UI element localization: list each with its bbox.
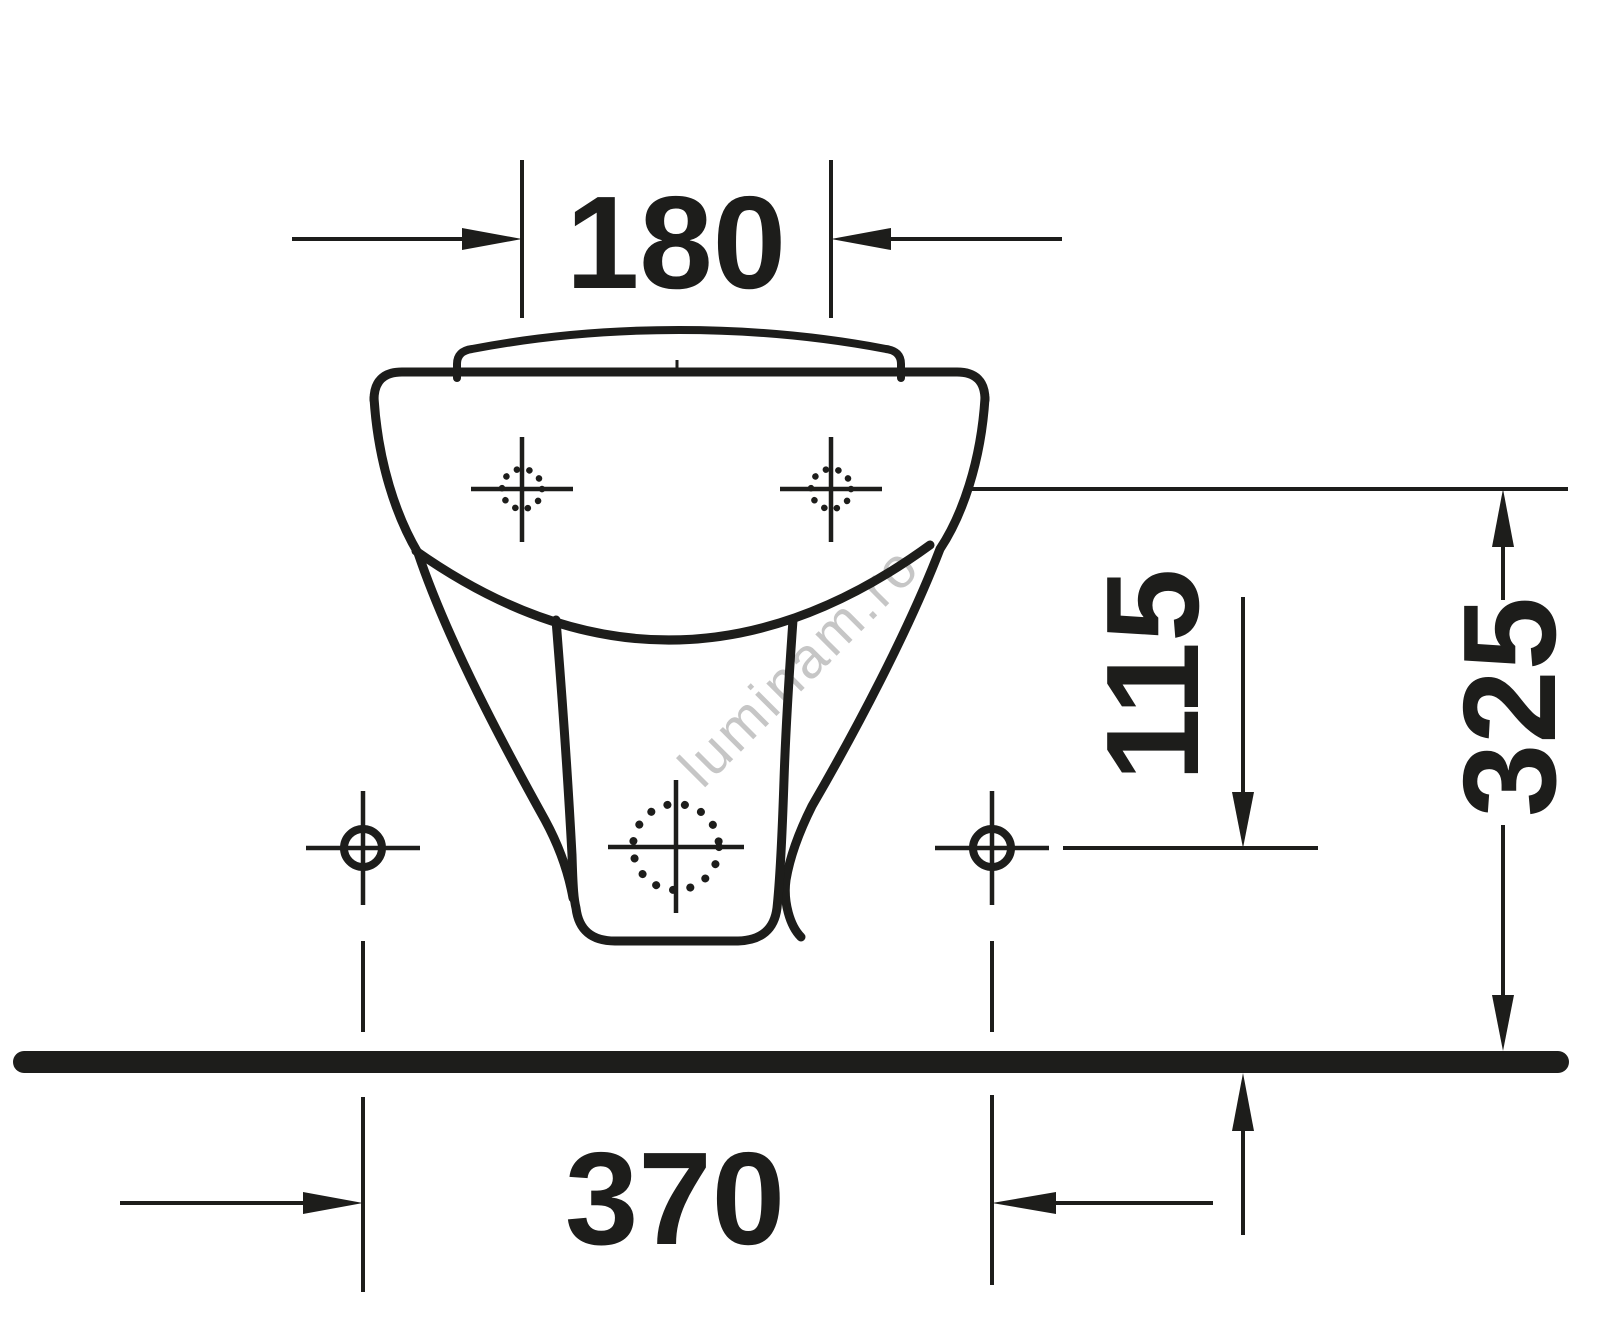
dim-180-arrow-left xyxy=(462,228,522,250)
dim-370-label: 370 xyxy=(565,1125,785,1272)
rim-outline xyxy=(374,372,985,400)
drain-hole xyxy=(608,780,744,913)
dimension-370: 370 xyxy=(120,1125,1213,1272)
drawing-canvas: luminam.ro xyxy=(0,0,1600,1321)
bidet-body-outline xyxy=(374,330,985,941)
dim-115-label: 115 xyxy=(1079,569,1226,782)
dimension-325: 325 xyxy=(968,489,1583,1051)
dim-115-arrow-down xyxy=(1232,792,1254,848)
dim-115-arrow-up xyxy=(1232,1073,1254,1131)
side-hole-right-crosshair xyxy=(935,791,1049,905)
dim-325-label: 325 xyxy=(1436,597,1583,817)
dimension-180: 180 xyxy=(292,160,1062,318)
dim-370-arrow-right xyxy=(992,1192,1056,1214)
dim-180-arrow-right xyxy=(831,228,891,250)
drain-crosshair xyxy=(608,780,744,913)
upper-hole-right-crosshair xyxy=(780,437,882,542)
upper-hole-left-crosshair xyxy=(471,437,573,542)
side-hole-left-crosshair xyxy=(306,791,420,905)
upper-hole-right xyxy=(780,437,882,542)
dim-370-arrow-left xyxy=(303,1192,363,1214)
dim-325-arrow-down xyxy=(1492,995,1514,1051)
left-outer-edge xyxy=(374,398,573,898)
bidet-technical-drawing: luminam.ro xyxy=(0,0,1600,1321)
upper-hole-left xyxy=(471,437,573,542)
side-hole-right xyxy=(935,791,1049,1285)
side-hole-left xyxy=(306,791,420,1292)
dim-180-label: 180 xyxy=(566,169,786,316)
dim-325-arrow-up xyxy=(1492,489,1514,547)
dimension-115: 115 xyxy=(1063,569,1318,1235)
